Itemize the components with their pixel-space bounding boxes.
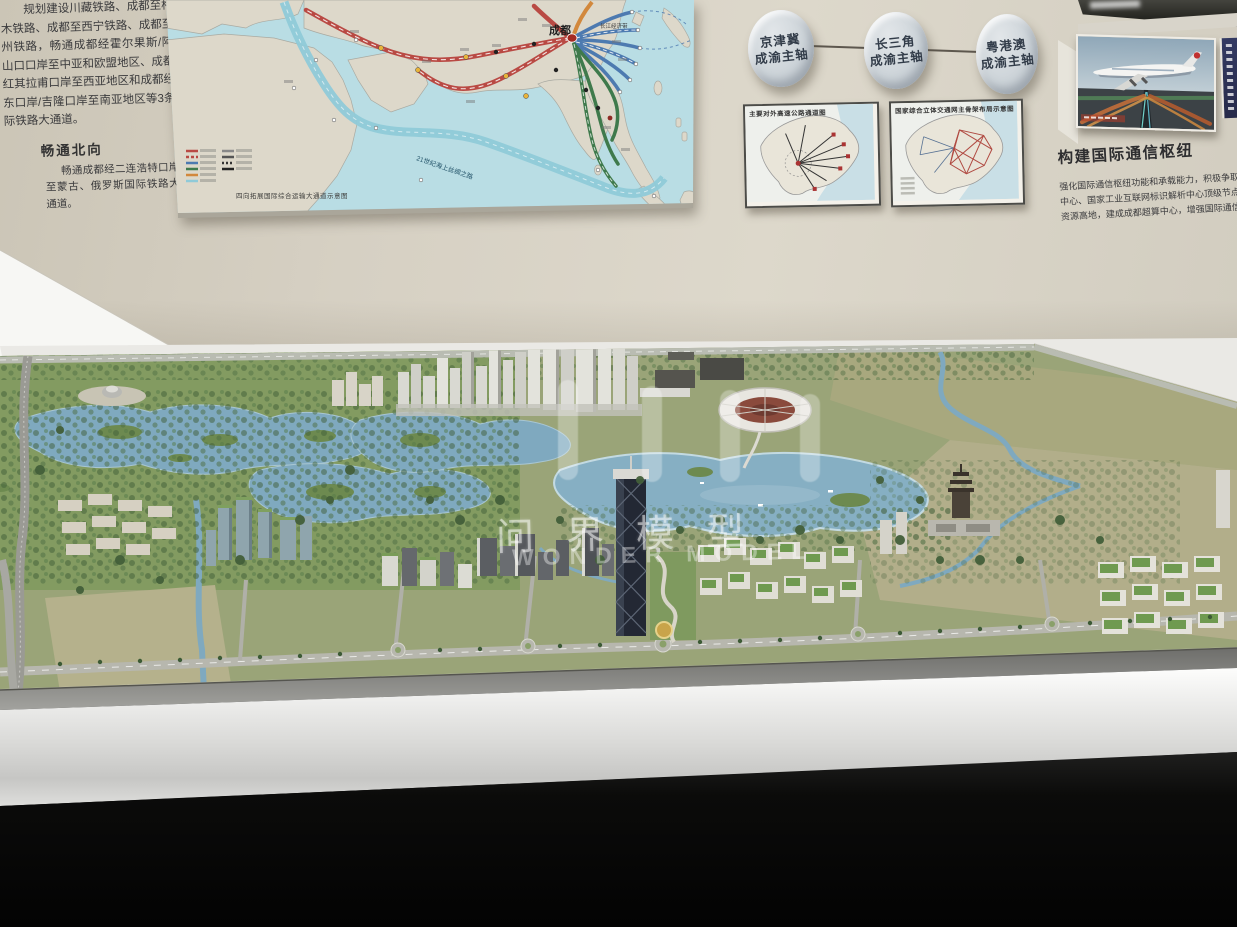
chengdu-label: 成都	[549, 23, 571, 37]
northbound-paragraph: 畅通成都经二连浩特口岸至蒙古、俄罗斯国际铁路大通道。	[45, 159, 180, 213]
route-map-graphic: 成都 长江经济带 21世纪海上丝绸之路 四向拓展国际综合运输大通道示意图	[166, 0, 696, 214]
expressway-map-frame: 主要对外高速公路通道图	[743, 102, 881, 209]
datacenter-photo-partial	[1220, 38, 1237, 119]
rail-corridor-paragraph: 规划建设川藏铁路、成都至格尔木铁路、成都至西宁铁路、成都至兰州铁路，畅通成都经霍…	[0, 0, 188, 131]
yangtze-belt-label: 长江经济带	[600, 22, 628, 30]
transport-network-map-graphic	[891, 101, 1019, 202]
city-model-scene	[0, 228, 1237, 927]
disc-region-label: 长三角	[874, 33, 916, 51]
watermark-bar	[558, 380, 578, 480]
axis-disc-jingjinji: 京津冀 成渝主轴	[748, 10, 814, 87]
watermark-bar	[642, 386, 662, 482]
vertical-caption-marks	[1226, 44, 1234, 110]
disc-region-label: 粤港澳	[985, 37, 1027, 55]
disc-region-label: 京津冀	[759, 31, 801, 49]
exhibit-photo: 规划建设川藏铁路、成都至格尔木铁路、成都至西宁铁路、成都至兰州铁路，畅通成都经霍…	[0, 0, 1237, 927]
route-map-poster: 成都 长江经济带 21世纪海上丝绸之路 四向拓展国际综合运输大通道示意图	[166, 0, 696, 218]
transport-network-map-frame: 国家综合立体交通网主骨架布局示意图	[889, 99, 1025, 208]
photo-shelf-side	[1058, 40, 1078, 144]
expressway-map-title: 主要对外高速公路通道图	[749, 107, 826, 119]
disc-axis-label: 成渝主轴	[980, 52, 1035, 72]
rail-corridor-text-panel: 规划建设川藏铁路、成都至格尔木铁路、成都至西宁铁路、成都至兰州铁路，畅通成都经霍…	[0, 0, 191, 214]
watermark-bar	[720, 390, 740, 482]
map-caption: 四向拓展国际综合运输大通道示意图	[236, 191, 348, 200]
airport-photo	[1076, 34, 1216, 132]
axis-disc-changsanjiao: 长三角 成渝主轴	[864, 12, 928, 89]
axis-disc-yuegangao: 粤港澳 成渝主轴	[976, 14, 1038, 94]
watermark-bar	[800, 394, 820, 482]
comm-hub-text-panel: 构建国际通信枢纽 强化国际通信枢纽功能和承载能力，积极争取布局国家新型互联网交 …	[1057, 129, 1237, 225]
expressway-map-graphic	[745, 104, 875, 203]
